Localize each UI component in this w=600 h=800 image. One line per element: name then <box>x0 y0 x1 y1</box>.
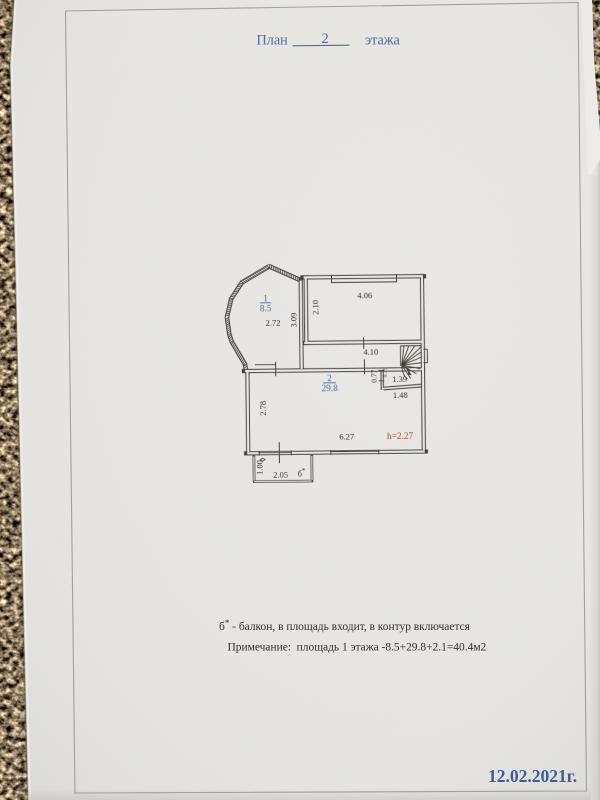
svg-text:Примечание: площадь 1 этажа -: Примечание: площадь 1 этажа -8.5+29.8+2.… <box>228 642 487 654</box>
svg-text:2.72: 2.72 <box>265 318 280 328</box>
svg-text:2: 2 <box>322 31 329 47</box>
svg-text:0.77: 0.77 <box>369 369 378 383</box>
svg-text:1.00: 1.00 <box>255 460 265 475</box>
svg-text:2.78: 2.78 <box>258 401 268 416</box>
svg-text:б* - балкон, в площадь входит,: б* - балкон, в площадь входит, в контур … <box>219 618 471 633</box>
svg-text:12.02.2021г.: 12.02.2021г. <box>488 766 577 786</box>
svg-text:2.10: 2.10 <box>310 300 320 315</box>
svg-text:1.39: 1.39 <box>392 374 407 384</box>
svg-text:h=2.27: h=2.27 <box>387 432 414 442</box>
svg-text:0.75: 0.75 <box>382 367 388 377</box>
svg-text:6.27: 6.27 <box>339 431 354 441</box>
svg-text:8.5: 8.5 <box>260 304 272 314</box>
svg-text:4.10: 4.10 <box>363 346 378 356</box>
svg-text:1.48: 1.48 <box>393 390 408 400</box>
svg-text:этажа: этажа <box>365 33 401 49</box>
svg-text:3.09: 3.09 <box>288 313 298 328</box>
svg-text:29.8: 29.8 <box>321 384 338 394</box>
svg-text:2.05: 2.05 <box>273 470 288 480</box>
svg-text:4.06: 4.06 <box>357 290 372 300</box>
svg-text:План: План <box>257 33 289 49</box>
